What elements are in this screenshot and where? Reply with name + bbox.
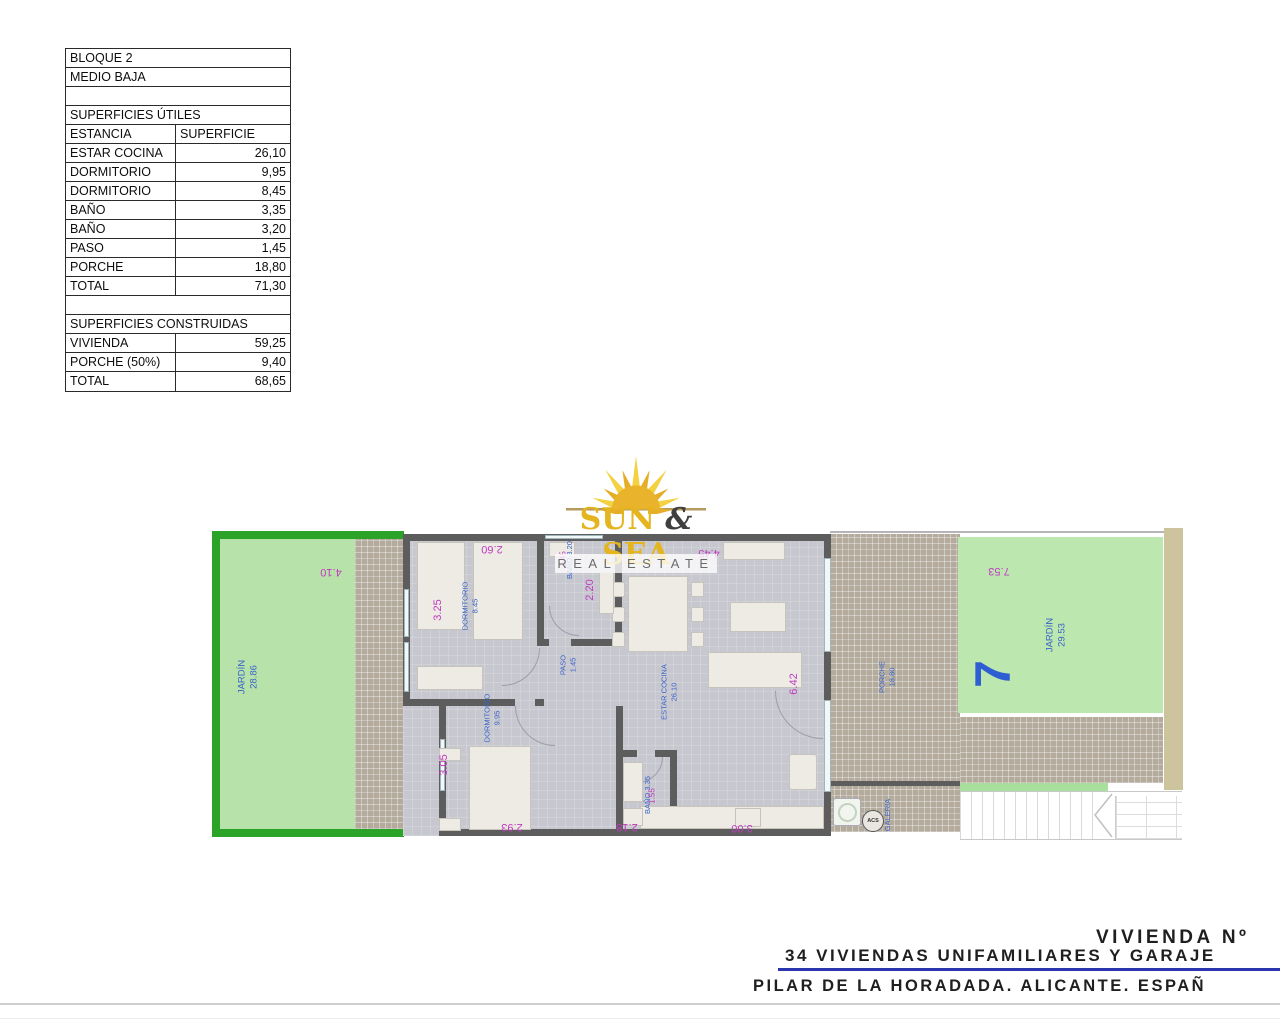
column-header-area: SUPERFICIE (176, 125, 290, 143)
room-name: TOTAL (66, 372, 176, 391)
block-label: BLOQUE 2 (70, 49, 133, 67)
table-row: PORCHE18,80 (66, 258, 290, 277)
room-area: 1,45 (176, 239, 290, 257)
window (404, 589, 409, 637)
table-row: DORMITORIO9,95 (66, 163, 290, 182)
table-row: BAÑO3,35 (66, 201, 290, 220)
bath1-dim-side: 2.20 (584, 579, 596, 600)
title-location: PILAR DE LA HORADADA. ALICANTE. ESPAÑ (753, 977, 1206, 996)
acs-boiler-icon: ACS (862, 810, 884, 832)
wall (824, 652, 831, 700)
wall (616, 706, 623, 836)
title-project: 34 VIVIENDAS UNIFAMILIARES Y GARAJE (785, 946, 1216, 966)
sliding-door-glass (824, 558, 831, 652)
bedroom1-dim-side: 3.25 (432, 599, 444, 620)
bedroom2-dim-side: 3.05 (438, 754, 450, 775)
table-row: PASO1,45 (66, 239, 290, 258)
garden-right-dim: 7.53 (988, 565, 1009, 577)
garden-left-dim: 4.10 (320, 566, 341, 578)
furniture-chair (691, 607, 704, 622)
side-paving (960, 717, 1163, 783)
room-name: PASO (66, 239, 176, 257)
wall (535, 699, 544, 706)
driveway (960, 791, 1182, 840)
table-row-total: TOTAL68,65 (66, 372, 290, 391)
table-row-block: BLOQUE 2 (66, 49, 290, 68)
bedroom1-label: DORMITORIO8.45 (460, 582, 480, 631)
room-area: 68,65 (176, 372, 290, 391)
room-area: 8,45 (176, 182, 290, 200)
garden-left-label: JARDÍN28.86 (237, 660, 262, 694)
furniture-chair (691, 632, 704, 647)
useful-title: SUPERFICIES ÚTILES (70, 106, 201, 124)
table-row-empty (66, 296, 290, 315)
furniture-tv-unit (723, 542, 785, 560)
plot-boundary-line (830, 531, 1164, 533)
wall (623, 750, 637, 757)
watermark-word1: SUN (580, 502, 655, 537)
table-header-row: ESTANCIA SUPERFICIE (66, 125, 290, 144)
wall (824, 792, 831, 836)
galeria-label: GALERIA (883, 799, 893, 832)
table-row-built-title: SUPERFICIES CONSTRUIDAS (66, 315, 290, 334)
garden-paving-strip (355, 539, 404, 829)
page-bottom-rule-faint (0, 1018, 1280, 1019)
table-row-useful-title: SUPERFICIES ÚTILES (66, 106, 290, 125)
room-name: DORMITORIO (66, 182, 176, 200)
paso-label: PASO1.45 (558, 655, 578, 675)
room-area: 71,30 (176, 277, 290, 295)
furniture-wardrobe (417, 666, 483, 690)
furniture-nightstand (439, 818, 461, 831)
furniture-chair (612, 632, 625, 647)
living-dim-side: 6.42 (788, 673, 800, 694)
furniture-coffee-table (730, 602, 786, 632)
sliding-door-glass (824, 700, 831, 792)
wall (537, 534, 544, 646)
surface-areas-table: BLOQUE 2 MEDIO BAJA SUPERFICIES ÚTILES E… (65, 48, 291, 392)
room-name: PORCHE (66, 258, 176, 276)
table-row: PORCHE (50%)9,40 (66, 353, 290, 372)
window (404, 642, 409, 692)
furniture-bed (473, 542, 523, 640)
boundary-strip (1164, 528, 1183, 790)
room-area: 18,80 (176, 258, 290, 276)
porch-label: PORCHE18.80 (877, 661, 897, 693)
bath2-dim-bottom: 2.18 (616, 821, 637, 833)
room-area: 9,95 (176, 163, 290, 181)
washing-machine-icon (833, 798, 861, 826)
level-label: MEDIO BAJA (70, 68, 146, 86)
table-row: BAÑO3,20 (66, 220, 290, 239)
watermark: SUN & SEA REAL ESTATE (545, 452, 727, 580)
bedroom1-dim-top: 2.60 (481, 543, 502, 555)
room-name: TOTAL (66, 277, 176, 295)
table-row: ESTAR COCINA26,10 (66, 144, 290, 163)
built-title: SUPERFICIES CONSTRUIDAS (70, 315, 248, 333)
room-name: VIVIENDA (66, 334, 176, 352)
wall (446, 699, 515, 706)
wall (824, 534, 831, 558)
bath-shower (623, 762, 643, 802)
door-swing (549, 606, 579, 636)
garden-right-label: JARDÍN29.53 (1045, 618, 1070, 652)
ramp-arrow-icon (1092, 792, 1114, 839)
furniture-chair (691, 582, 704, 597)
living-dim-bottom: 3.00 (731, 822, 752, 834)
room-name: DORMITORIO (66, 163, 176, 181)
room-area: 26,10 (176, 144, 290, 162)
watermark-ampersand: & (665, 502, 692, 537)
room-name: PORCHE (50%) (66, 353, 176, 371)
bath2-dim-overlap: 1.55 (648, 788, 657, 804)
room-area: 3,20 (176, 220, 290, 238)
title-divider-line (778, 968, 1280, 971)
kitchen-sink (789, 754, 817, 790)
floor-plan-page: { "areas_table": { "block": "BLOQUE 2", … (0, 0, 1280, 1024)
door-swing (502, 648, 540, 686)
table-row-total: TOTAL71,30 (66, 277, 290, 296)
table-row-empty (66, 87, 290, 106)
plot-number: 7 (964, 660, 1022, 688)
table-row: DORMITORIO8,45 (66, 182, 290, 201)
door-swing (775, 691, 823, 739)
watermark-tagline: REAL ESTATE (555, 554, 717, 573)
page-bottom-rule (0, 1003, 1280, 1005)
furniture-bed (469, 746, 531, 830)
door-swing (515, 706, 555, 746)
room-name: ESTAR COCINA (66, 144, 176, 162)
room-area: 59,25 (176, 334, 290, 352)
wall (828, 781, 960, 786)
table-row: VIVIENDA59,25 (66, 334, 290, 353)
driveway-grid (1115, 796, 1182, 839)
room-area: 3,35 (176, 201, 290, 219)
porch (830, 534, 960, 784)
acs-label: ACS (867, 818, 879, 824)
column-header-room: ESTANCIA (66, 125, 176, 143)
furniture-dining-table (628, 576, 688, 652)
lawn-strip (960, 783, 1108, 791)
bedroom2-dim-bottom: 2.93 (501, 821, 522, 833)
room-name: BAÑO (66, 220, 176, 238)
living-label: ESTAR COCINA26.10 (659, 664, 679, 720)
room-area: 9,40 (176, 353, 290, 371)
wall (537, 639, 549, 646)
bedroom2-label: DORMITORIO9.95 (482, 694, 502, 743)
driveway-ramp (960, 792, 1094, 839)
room-name: BAÑO (66, 201, 176, 219)
table-row-level: MEDIO BAJA (66, 68, 290, 87)
